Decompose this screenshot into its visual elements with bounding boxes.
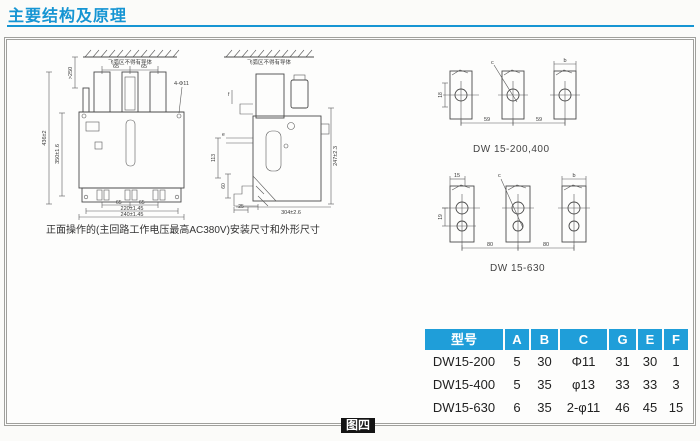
dim-c: c bbox=[491, 60, 494, 66]
busbar-200-400-drawing: c b 18 59 59 bbox=[438, 57, 608, 142]
hatch-pattern bbox=[226, 50, 312, 57]
table-row: DW15-630 6 35 2-φ11 46 45 15 bbox=[425, 396, 690, 419]
dim-edge: 18 bbox=[438, 92, 444, 98]
cell-c: Φ11 bbox=[560, 350, 607, 373]
side-view-drawing: 飞弧区不得有导体 f e 113 60 25 247±2.3 304±2.6 bbox=[196, 46, 351, 218]
dim-outer-width: 240±1.45 bbox=[121, 212, 144, 218]
figure-number-label: 图四 bbox=[341, 418, 375, 433]
cell-model: DW15-630 bbox=[425, 396, 503, 419]
cell-e: 45 bbox=[638, 396, 662, 419]
cell-f: 15 bbox=[664, 396, 688, 419]
cell-a: 5 bbox=[505, 350, 529, 373]
dim-top-span-1: 65 bbox=[113, 64, 119, 70]
dim-clearance: >250 bbox=[68, 67, 74, 79]
cell-b: 30 bbox=[531, 350, 558, 373]
dim-depth: 304±2.6 bbox=[281, 210, 301, 216]
cell-f: 1 bbox=[664, 350, 688, 373]
dim-c: c bbox=[498, 173, 501, 179]
page-title: 主要结构及原理 bbox=[8, 2, 127, 26]
dim-f: f bbox=[228, 92, 230, 98]
dim-edge: 19 bbox=[438, 214, 444, 220]
busbar-630-drawing: 15 c b 19 80 80 bbox=[438, 170, 608, 262]
header-e: E bbox=[638, 329, 662, 350]
dim-height: 247±2.3 bbox=[333, 146, 339, 166]
cell-b: 35 bbox=[531, 396, 558, 419]
cell-g: 33 bbox=[609, 373, 636, 396]
cell-e: 30 bbox=[638, 350, 662, 373]
dim-pitch-2: 59 bbox=[536, 117, 542, 123]
front-view-caption: 正面操作的(主回路工作电压最高AC380V)安装尺寸和外形尺寸 bbox=[46, 221, 320, 236]
cell-g: 31 bbox=[609, 350, 636, 373]
table-row: DW15-200 5 30 Φ11 31 30 1 bbox=[425, 350, 690, 373]
dim-height: 436±2 bbox=[42, 130, 48, 145]
cell-c: φ13 bbox=[560, 373, 607, 396]
dim-113: 113 bbox=[211, 154, 217, 162]
header-g: G bbox=[609, 329, 636, 350]
dim-holes: 4-Φ11 bbox=[174, 81, 189, 87]
dim-pitch-2: 80 bbox=[543, 242, 549, 248]
front-view-drawing: 飞弧区不得有导体 >250 65 65 4-Φ11 436±2 350±1.6 … bbox=[35, 46, 210, 218]
hatch-pattern bbox=[85, 50, 179, 57]
busbar-200-400-caption: DW 15-200,400 bbox=[473, 144, 550, 155]
cell-a: 5 bbox=[505, 373, 529, 396]
cell-e: 33 bbox=[638, 373, 662, 396]
header-f: F bbox=[664, 329, 688, 350]
dim-top-span-2: 65 bbox=[141, 64, 147, 70]
cell-c: 2-φ11 bbox=[560, 396, 607, 419]
cell-f: 3 bbox=[664, 373, 688, 396]
dim-inner-height: 350±1.6 bbox=[55, 144, 61, 164]
dim-pitch-1: 80 bbox=[487, 242, 493, 248]
cell-a: 6 bbox=[505, 396, 529, 419]
cell-model: DW15-400 bbox=[425, 373, 503, 396]
title-underline bbox=[7, 25, 694, 27]
busbar-630-caption: DW 15-630 bbox=[490, 263, 545, 274]
cell-b: 35 bbox=[531, 373, 558, 396]
cell-model: DW15-200 bbox=[425, 350, 503, 373]
header-a: A bbox=[505, 329, 529, 350]
spec-table: 型号 A B C G E F DW15-200 5 30 Φ11 31 30 1… bbox=[425, 329, 690, 419]
cell-g: 46 bbox=[609, 396, 636, 419]
dim-b: b bbox=[572, 173, 575, 179]
dim-top: 15 bbox=[454, 173, 460, 179]
header-c: C bbox=[560, 329, 607, 350]
arc-zone-note: 飞弧区不得有导体 bbox=[247, 58, 292, 66]
dim-b: b bbox=[563, 58, 566, 64]
dim-pitch-1: 59 bbox=[484, 117, 490, 123]
dim-60: 60 bbox=[221, 183, 227, 189]
spec-table-header: 型号 A B C G E F bbox=[425, 329, 690, 350]
dim-e: e bbox=[222, 132, 225, 138]
table-row: DW15-400 5 35 φ13 33 33 3 bbox=[425, 373, 690, 396]
header-model: 型号 bbox=[425, 329, 503, 350]
header-b: B bbox=[531, 329, 558, 350]
